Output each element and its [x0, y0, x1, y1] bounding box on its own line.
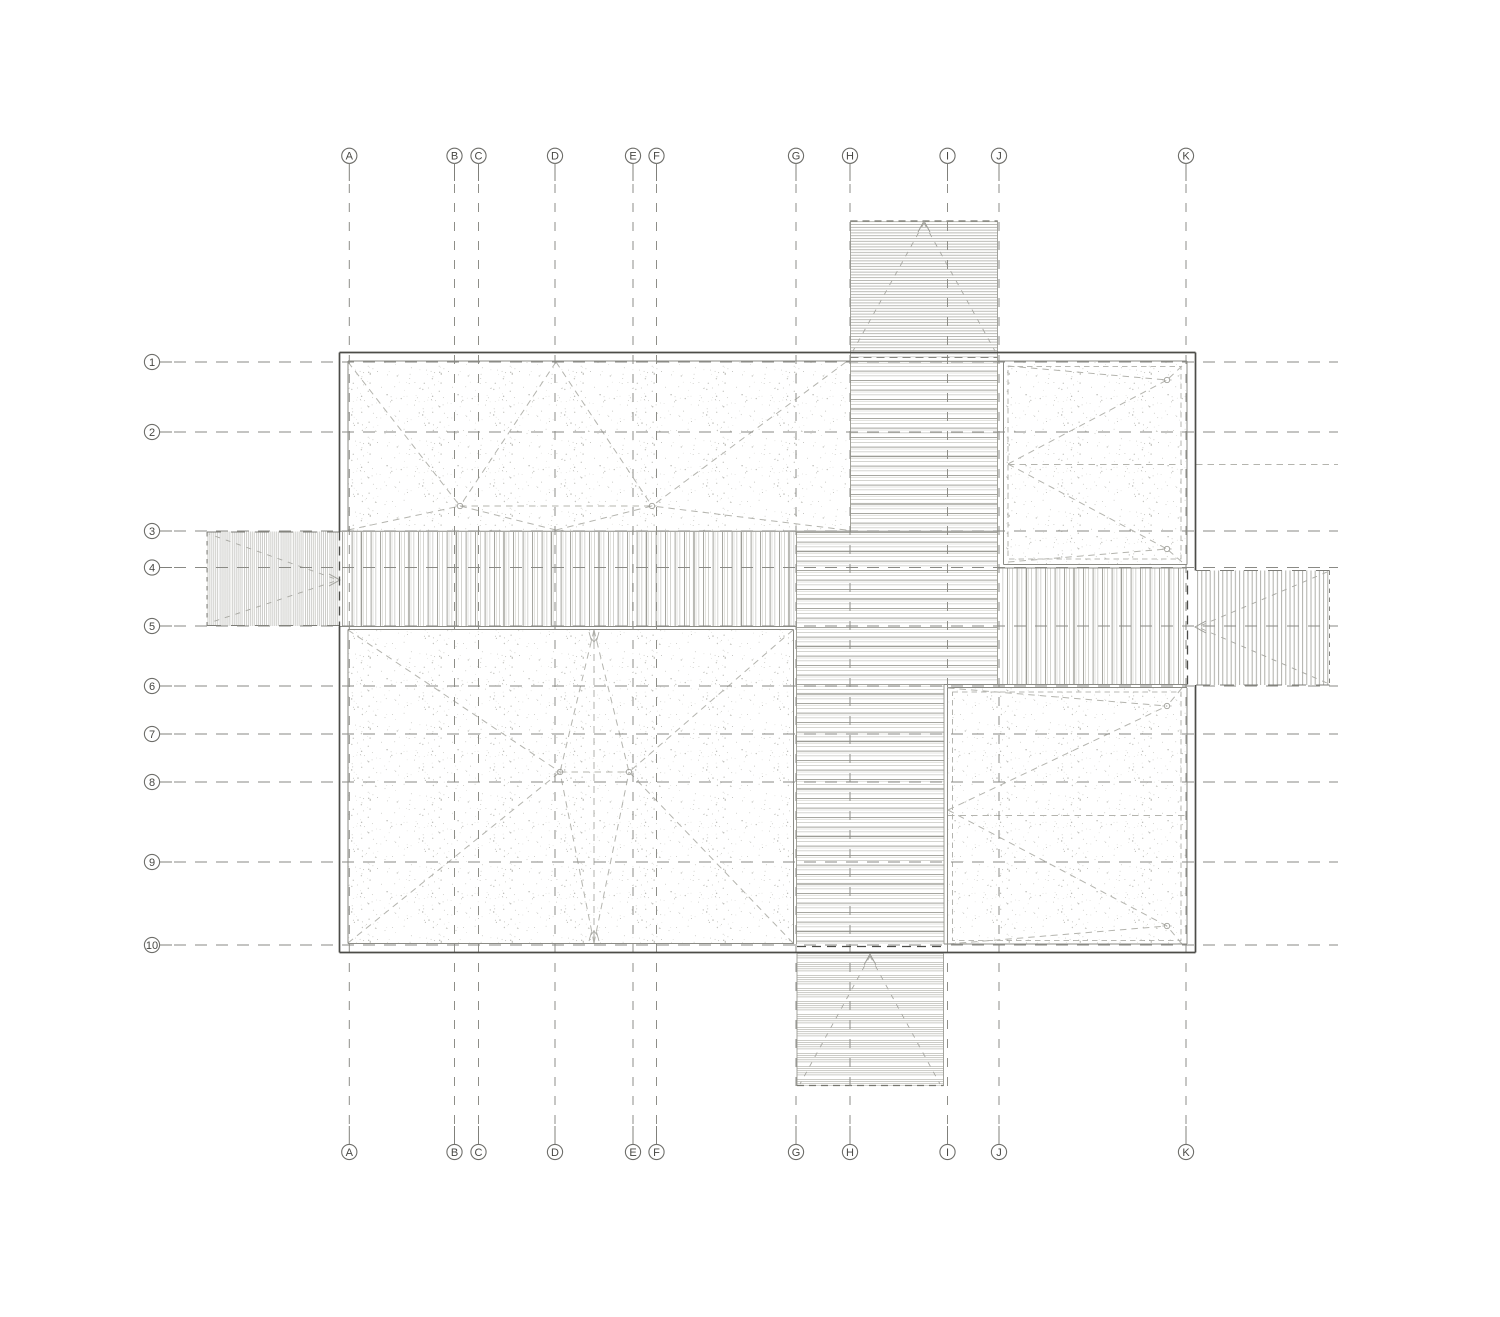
svg-text:1: 1	[149, 357, 155, 369]
svg-text:B: B	[451, 151, 458, 163]
svg-text:D: D	[551, 151, 559, 163]
svg-text:5: 5	[149, 621, 155, 633]
svg-text:E: E	[629, 151, 636, 163]
svg-text:A: A	[346, 1147, 354, 1159]
svg-text:C: C	[475, 1147, 483, 1159]
svg-text:8: 8	[149, 777, 155, 789]
svg-text:C: C	[475, 151, 483, 163]
svg-text:7: 7	[149, 729, 155, 741]
svg-text:I: I	[946, 151, 949, 163]
svg-text:E: E	[629, 1147, 636, 1159]
svg-text:F: F	[653, 1147, 660, 1159]
svg-text:I: I	[946, 1147, 949, 1159]
svg-text:J: J	[996, 1147, 1002, 1159]
svg-text:G: G	[792, 151, 801, 163]
svg-text:F: F	[653, 151, 660, 163]
svg-text:G: G	[792, 1147, 801, 1159]
svg-text:H: H	[846, 151, 854, 163]
svg-text:A: A	[346, 151, 354, 163]
svg-text:D: D	[551, 1147, 559, 1159]
svg-text:K: K	[1182, 151, 1190, 163]
svg-text:B: B	[451, 1147, 458, 1159]
svg-text:3: 3	[149, 526, 155, 538]
svg-text:10: 10	[146, 940, 158, 952]
svg-text:J: J	[996, 151, 1002, 163]
svg-text:4: 4	[149, 562, 155, 574]
svg-text:K: K	[1182, 1147, 1190, 1159]
svg-text:9: 9	[149, 857, 155, 869]
svg-text:2: 2	[149, 427, 155, 439]
svg-text:6: 6	[149, 681, 155, 693]
svg-text:H: H	[846, 1147, 854, 1159]
